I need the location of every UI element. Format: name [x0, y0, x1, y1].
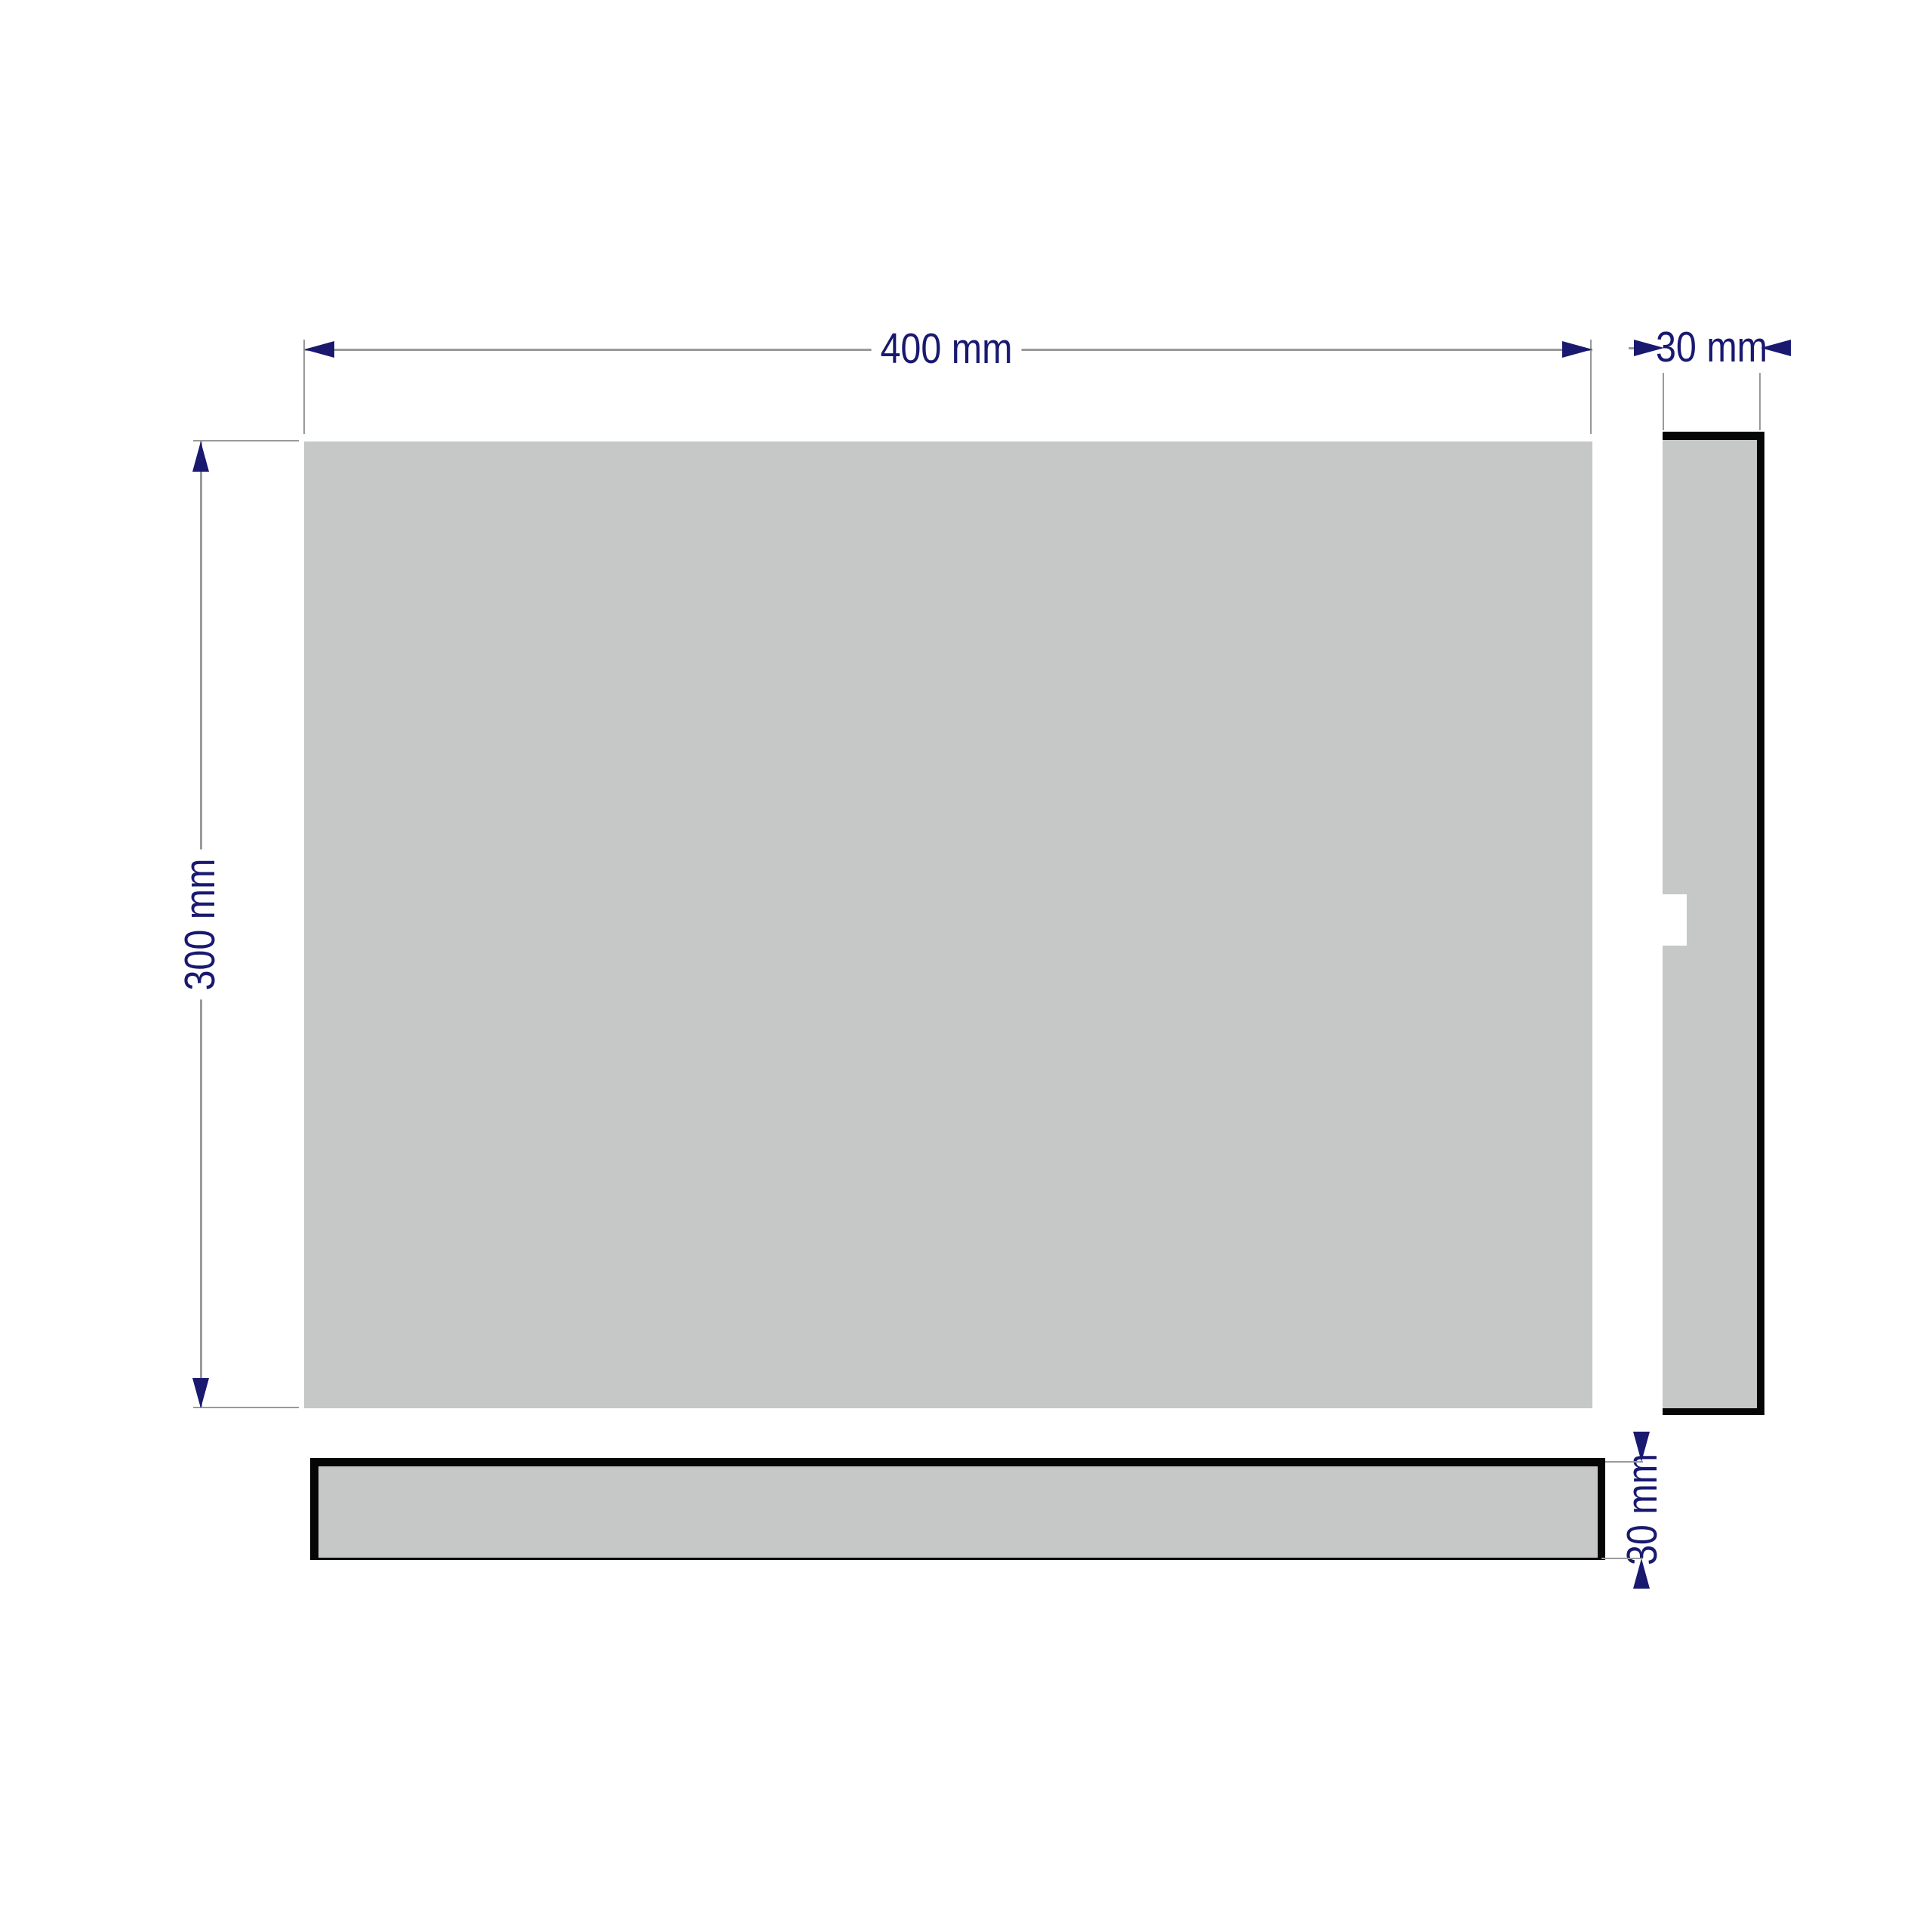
width-dimension-label: 400 mm [872, 325, 1022, 374]
side-panel-notch [1663, 894, 1687, 946]
height-arrow-up-icon [192, 441, 209, 472]
height-dimension-label: 300 mm [176, 850, 226, 1000]
side-depth-arrow-left-icon [1634, 340, 1664, 356]
technical-drawing-canvas: 400 mm 300 mm 30 mm 30 mm [0, 0, 1932, 1932]
bottom-thickness-arrow-bottom-icon [1633, 1558, 1650, 1589]
side-depth-dimension-label: 30 mm [1647, 323, 1777, 373]
side-depth-extension-line-left [1663, 367, 1664, 430]
side-panel-view [1663, 432, 1764, 1415]
side-depth-arrow-right-icon [1761, 340, 1791, 356]
width-arrow-left-icon [304, 341, 334, 358]
height-arrow-down-icon [192, 1378, 209, 1408]
height-extension-line-top [193, 440, 299, 441]
bottom-thickness-arrow-top-icon [1633, 1432, 1650, 1462]
bottom-panel-fill [318, 1466, 1598, 1558]
bottom-panel-view [310, 1458, 1605, 1560]
height-extension-line-bottom [193, 1407, 299, 1408]
side-depth-extension-line-right [1759, 367, 1761, 430]
front-panel-face [304, 441, 1592, 1408]
width-arrow-right-icon [1562, 341, 1592, 358]
bottom-thickness-dimension-label: 30 mm [1618, 1444, 1668, 1574]
